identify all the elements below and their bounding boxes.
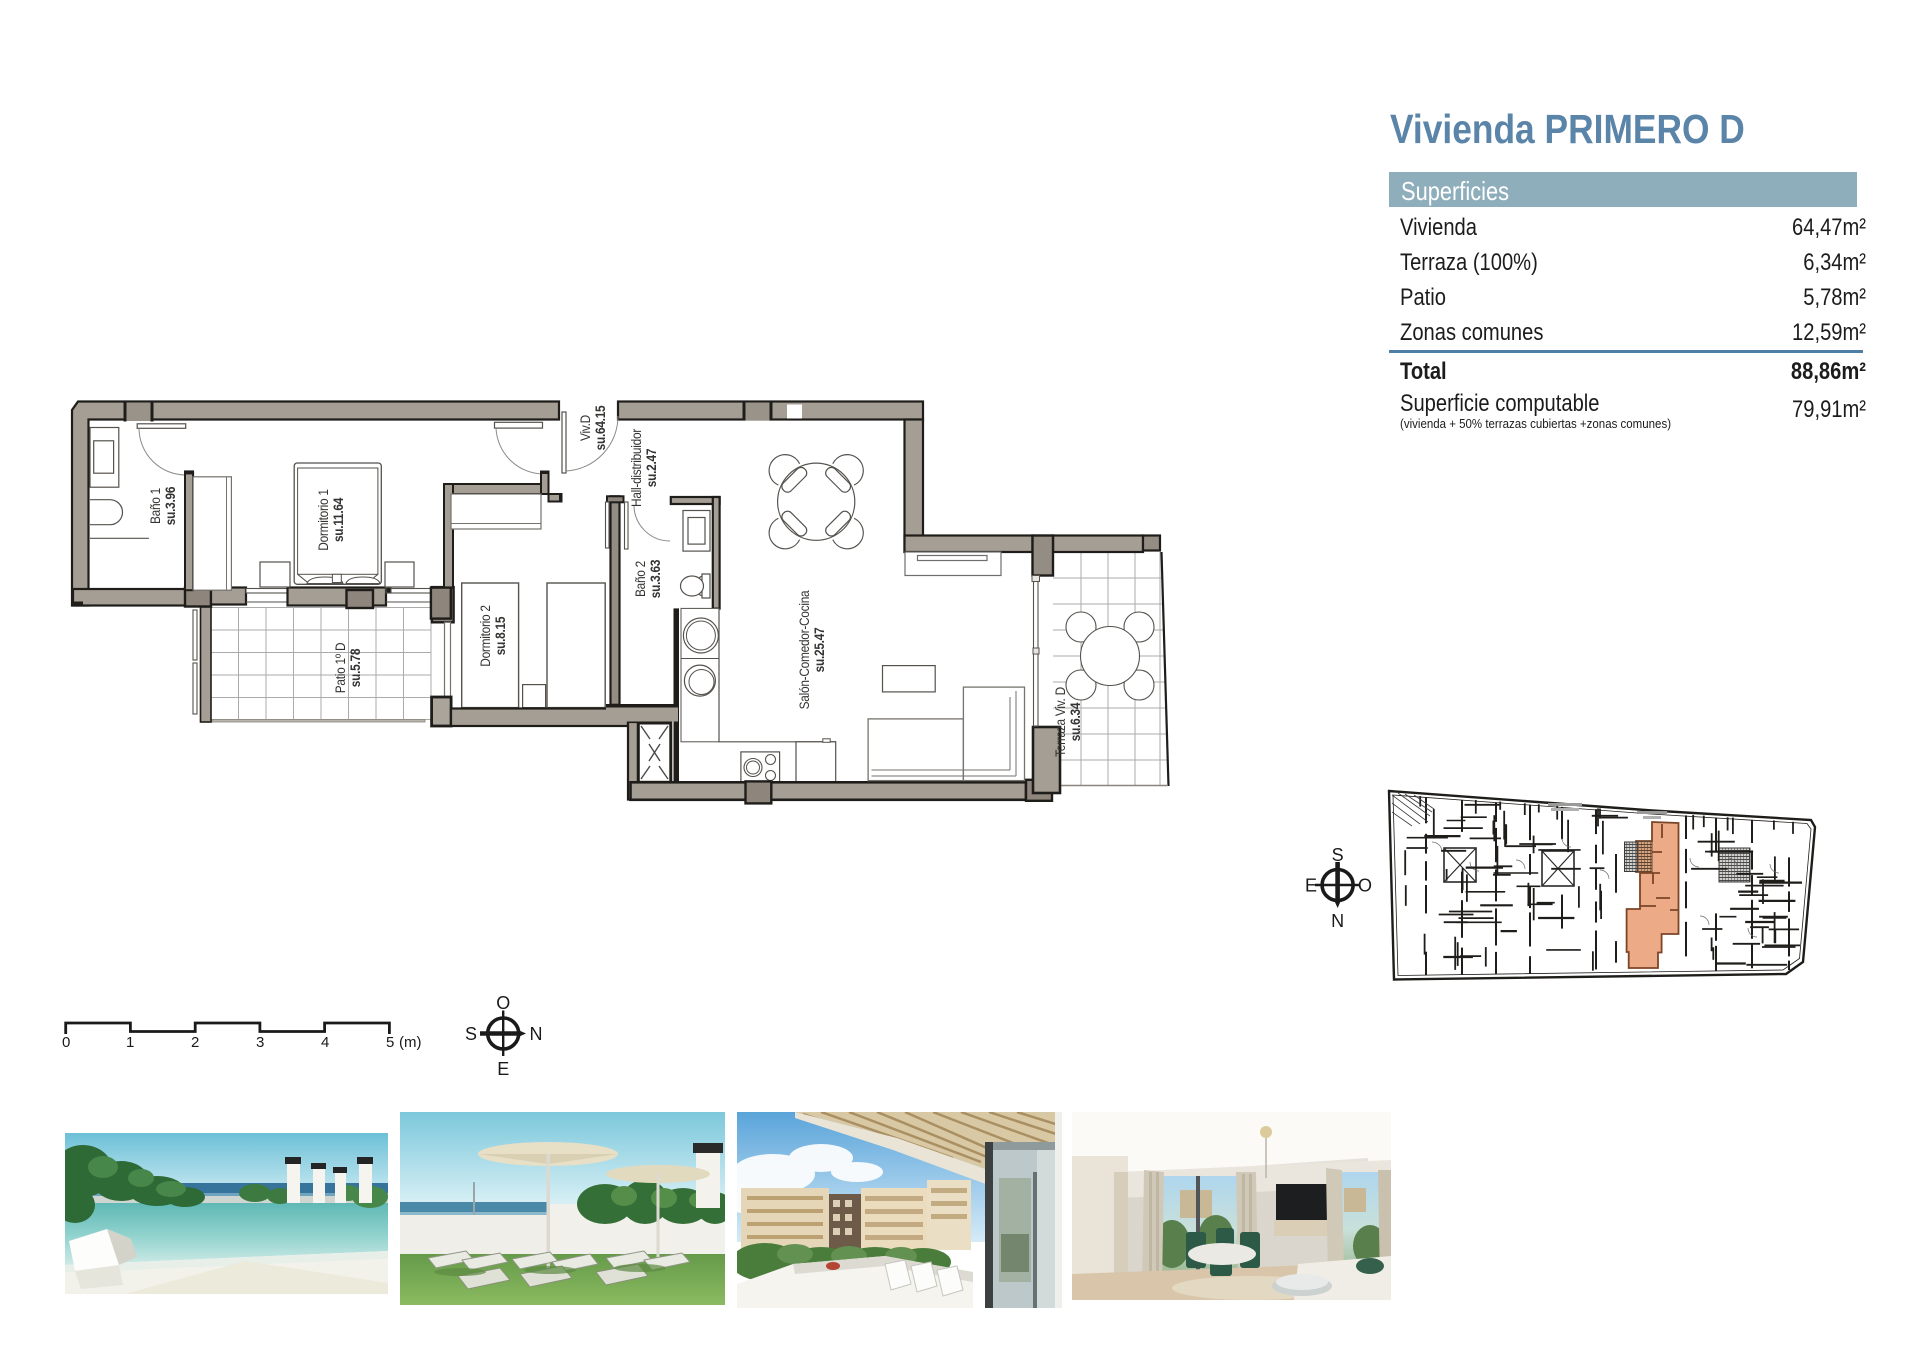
svg-text:5: 5 xyxy=(386,1034,394,1051)
svg-text:E: E xyxy=(1305,876,1317,896)
svg-text:N: N xyxy=(1331,911,1344,931)
svg-text:2: 2 xyxy=(191,1034,199,1051)
svg-text:0: 0 xyxy=(62,1034,70,1051)
svg-text:4: 4 xyxy=(321,1034,329,1051)
svg-text:S: S xyxy=(1332,845,1344,865)
svg-text:O: O xyxy=(1358,876,1372,896)
svg-text:1: 1 xyxy=(126,1034,134,1051)
svg-text:N: N xyxy=(530,1024,543,1044)
svg-text:(m): (m) xyxy=(399,1034,422,1051)
svg-text:3: 3 xyxy=(256,1034,264,1051)
svg-text:S: S xyxy=(465,1024,477,1044)
svg-text:E: E xyxy=(497,1059,509,1079)
svg-text:O: O xyxy=(496,993,510,1013)
